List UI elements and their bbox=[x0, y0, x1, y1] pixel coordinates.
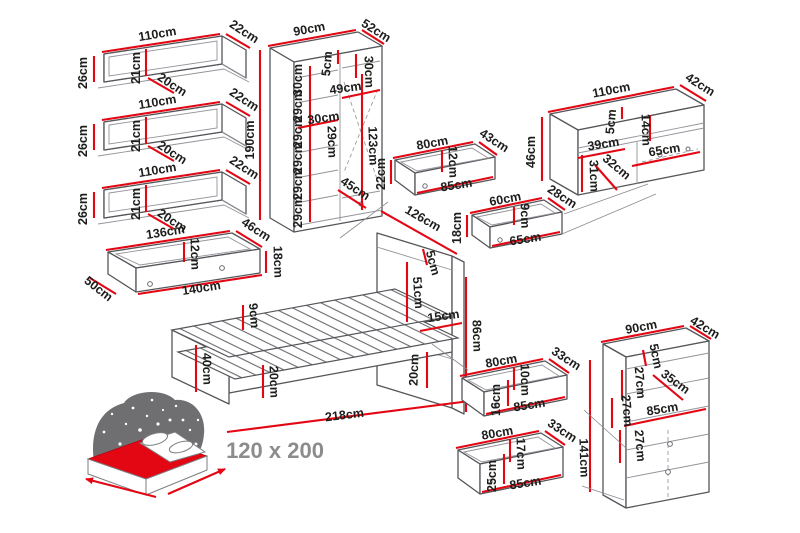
bed-frame-height-label: 9cm bbox=[246, 303, 262, 329]
drawer-80x33-large: 80cm 33cm 17cm 85cm 25cm bbox=[456, 416, 579, 494]
drawer80x33l-height-label: 25cm bbox=[485, 460, 499, 492]
wardrobe-middle-depth-label: 29cm bbox=[324, 126, 339, 158]
wardrobe-right-top-label: 30cm bbox=[361, 56, 376, 88]
shelf2-inner-height-label: 21cm bbox=[129, 120, 143, 152]
wardrobe-top-panel-label: 5cm bbox=[319, 51, 335, 77]
drawer60x28-inner-height-label: 9cm bbox=[518, 203, 533, 229]
bed-size-icon: 120 x 200 bbox=[86, 392, 324, 497]
wall-shelf-3: 110cm 22cm 26cm 21cm 20cm bbox=[76, 153, 261, 235]
drawer80x43-inner-height-label: 12cm bbox=[445, 146, 460, 178]
dresser-section2-label: 27cm bbox=[619, 394, 636, 427]
bed-size-text: 120 x 200 bbox=[226, 438, 324, 463]
bed-length-label: 218cm bbox=[324, 406, 364, 425]
drawer-80x33-small: 80cm 33cm 10cm 85cm 16cm bbox=[460, 344, 583, 416]
drawer80x33s-inner-height-label: 10cm bbox=[517, 364, 532, 396]
shelf1-height-label: 26cm bbox=[76, 57, 90, 89]
drawer80x43-height-label: 22cm bbox=[374, 158, 388, 190]
drawer80x33l-inner-height-label: 17cm bbox=[513, 438, 528, 470]
wardrobe-section-label-5: 29cm bbox=[291, 168, 305, 200]
underdrawer-side-depth-label: 50cm bbox=[82, 273, 116, 304]
furniture-dimension-sheet: 110cm 22cm 26cm 21cm 20cm 110cm 22cm 26c… bbox=[0, 0, 800, 533]
dresser-section1-label: 27cm bbox=[632, 366, 649, 399]
shelf2-height-label: 26cm bbox=[76, 125, 90, 157]
bed-headboard-height-label: 51cm bbox=[410, 276, 426, 309]
drawer-80x43: 80cm 43cm 12cm 85cm 22cm bbox=[374, 126, 511, 195]
underdrawer-inner-height-label: 12cm bbox=[187, 238, 202, 270]
tvstand-depth-label: 42cm bbox=[683, 70, 718, 99]
bed-total-height-label: 86cm bbox=[469, 320, 484, 352]
drawer-60x28: 60cm 28cm 9cm 65cm 18cm bbox=[450, 182, 579, 248]
dresser-section3-label: 27cm bbox=[632, 429, 649, 462]
drawer60x28-height-label: 18cm bbox=[450, 212, 464, 244]
tvstand-height-label: 46cm bbox=[524, 136, 538, 168]
bed-rail-height-label: 20cm bbox=[266, 366, 281, 398]
tvstand-shelf-height-label: 14cm bbox=[638, 114, 653, 146]
underdrawer-side-height-label: 18cm bbox=[270, 246, 285, 278]
shelf1-inner-height-label: 21cm bbox=[129, 52, 143, 84]
bed-back-height-label: 20cm bbox=[406, 354, 421, 386]
drawer80x33s-height-label: 16cm bbox=[489, 384, 503, 416]
wardrobe: 90cm 52cm 190cm 5cm 30cm 49cm 30cm 30cm … bbox=[243, 16, 393, 232]
shelf3-inner-height-label: 21cm bbox=[129, 188, 143, 220]
furniture-dimensions-diagram: 110cm 22cm 26cm 21cm 20cm 110cm 22cm 26c… bbox=[0, 0, 800, 533]
wardrobe-height-label: 190cm bbox=[243, 121, 257, 160]
tvstand-top-panel-label: 5cm bbox=[603, 109, 619, 135]
tv-stand: 110cm 42cm 46cm 5cm 14cm 39cm 32cm 31cm … bbox=[524, 70, 717, 195]
bed-headboard-width-label: 126cm bbox=[403, 203, 444, 235]
bed-foot-height-label: 40cm bbox=[199, 353, 214, 385]
shelf3-height-label: 26cm bbox=[76, 193, 90, 225]
dresser-height-label: 141cm bbox=[576, 438, 591, 477]
tvstand-left-height-label: 31cm bbox=[586, 160, 601, 192]
dresser: 90cm 42cm 141cm 5cm 27cm 35cm 27cm 85cm … bbox=[576, 313, 722, 508]
under-shelf-drawer: 136cm 46cm 12cm 18cm 140cm 50cm bbox=[82, 215, 286, 304]
wardrobe-section-label-6: 29cm bbox=[291, 196, 305, 228]
